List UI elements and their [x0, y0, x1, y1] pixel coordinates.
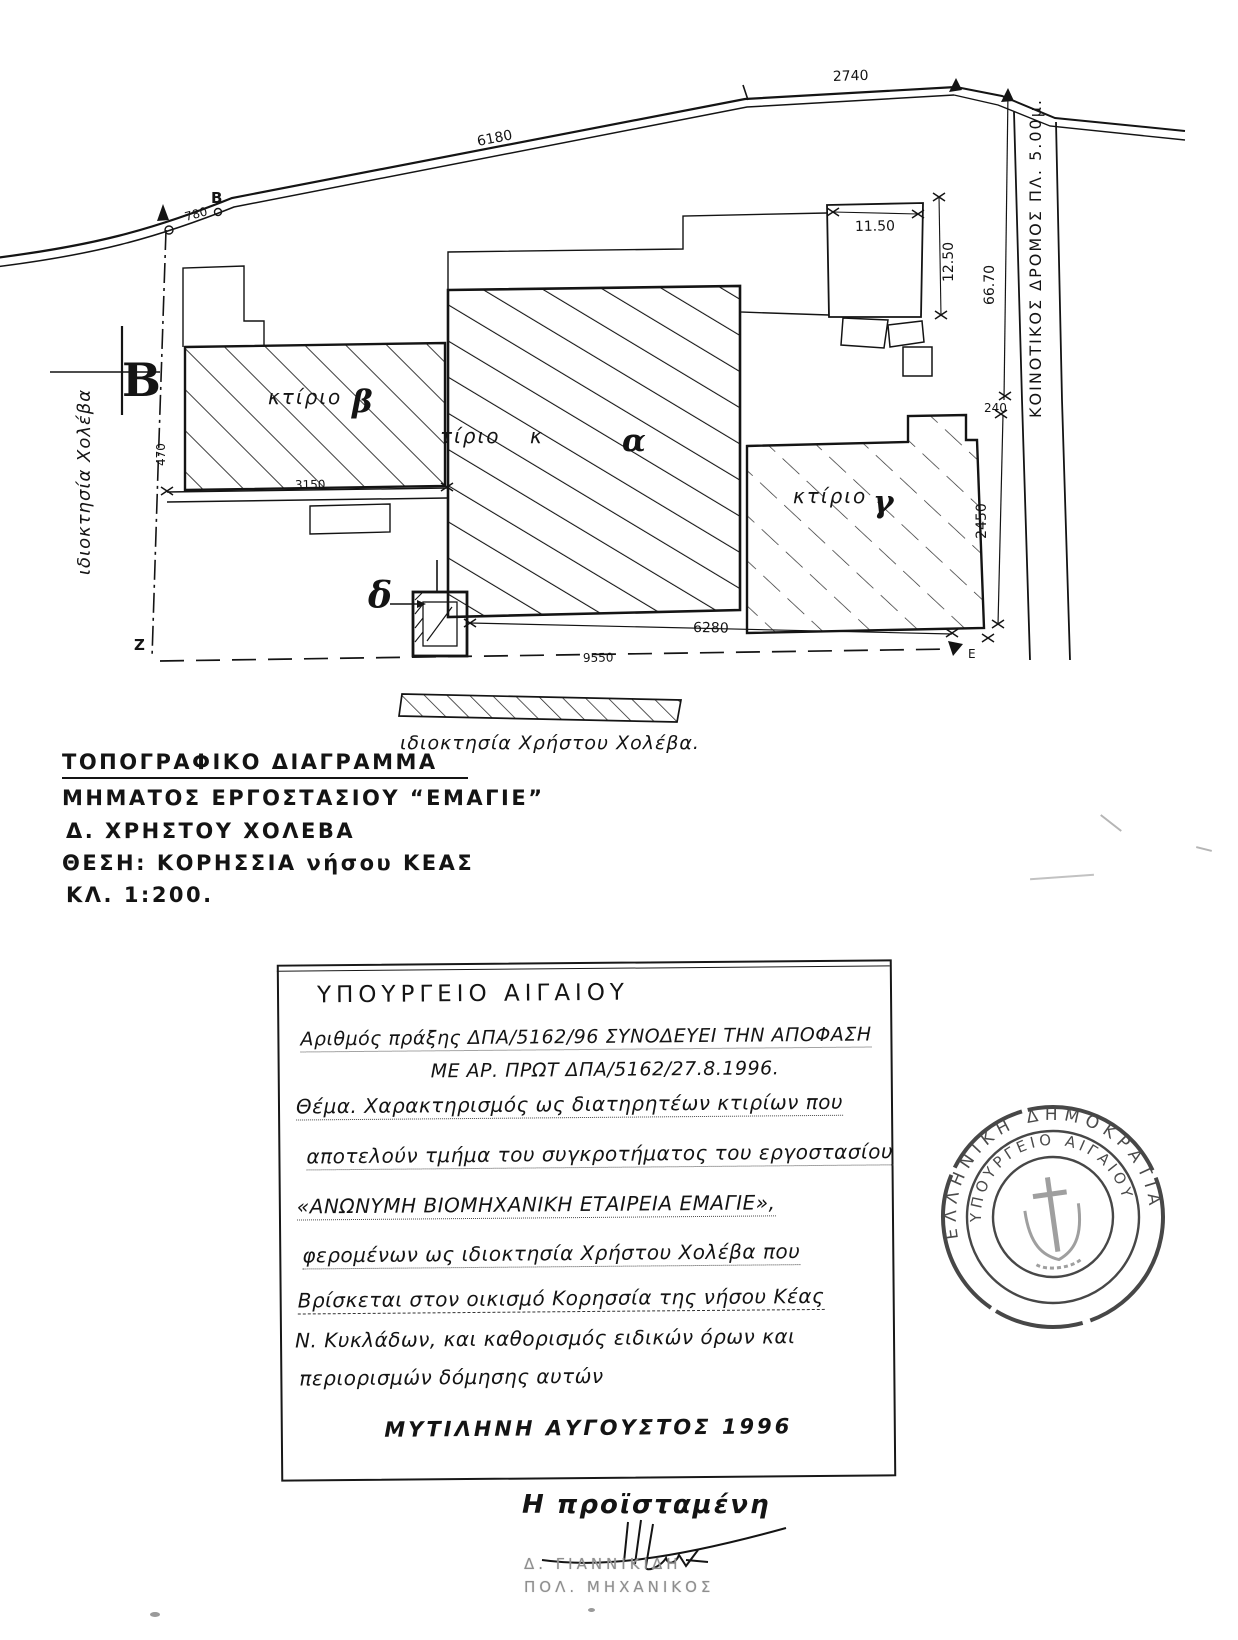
decision-line-6: «ΑΝΩΝΥΜΗ ΒΙΟΜΗΧΑΝΙΚΗ ΕΤΑΙΡΕΙΑ ΕΜΑΓΙΕ»,: [297, 1190, 776, 1220]
decision-line-2: Αριθμός πράξης ΔΠΑ/5162/96 ΣΥΝΟΔΕΥΕΙ ΤΗΝ…: [300, 1024, 871, 1053]
neighbour-strip: [399, 694, 681, 722]
building-gamma-word: κτίριο: [793, 484, 867, 508]
section-mark-b: Β: [50, 326, 161, 415]
decision-line-9: Ν. Κυκλάδων, και καθορισμός ειδικών όρων…: [295, 1324, 796, 1352]
corner-arrow: [949, 78, 962, 92]
beta-dim-strip: [167, 488, 447, 534]
dim-6280: 6280: [693, 620, 729, 637]
decision-line-4: Θέμα. Χαρακτηρισμός ως διατηρητέων κτιρί…: [296, 1090, 843, 1121]
decision-line-11: ΜΥΤΙΛΗΝΗ ΑΥΓΟΥΣΤΟΣ 1996: [283, 1413, 894, 1442]
building-alpha-letter: α: [622, 423, 646, 459]
scanned-topographic-document: ΚΟΙΝΟΤΙΚΟΣ ΔΡΟΜΟΣ ΠΛ. 5.00μ. B 780 6180 …: [0, 0, 1238, 1640]
road-tick: [743, 85, 748, 100]
scan-dot: [588, 1608, 595, 1612]
dim-9550: 9550: [583, 650, 614, 665]
title-line-5: ΚΛ. 1:200.: [66, 883, 214, 907]
dim-780: 780: [183, 204, 209, 223]
scan-dot: [150, 1612, 160, 1617]
dim-6670-arrow: [1001, 88, 1014, 102]
ministry-round-stamp: ΕΛΛΗΝΙΚΗ ΔΗΜΟΚΡΑΤΙΑ ΥΠΟΥΡΓΕΙΟ ΑΙΓΑΙΟΥ: [889, 1053, 1217, 1381]
building-alpha: [448, 286, 740, 617]
delta-leader-arrow: [417, 600, 426, 608]
decision-line-8: Βρίσκεται στον οικισμό Κορησσία της νήσο…: [298, 1284, 825, 1315]
scan-mark: [1030, 874, 1094, 880]
dim-1250: 12.50: [941, 242, 957, 282]
scan-mark: [1100, 814, 1122, 832]
title-line-1: ΤΟΠΟΓΡΑΦΙΚΟ ΔΙΑΓΡΑΜΜΑ: [62, 750, 468, 779]
svg-text:ΕΛΛΗΝΙΚΗ ΔΗΜΟΚΡΑΤΙΑ: ΕΛΛΗΝΙΚΗ ΔΗΜΟΚΡΑΤΙΑ: [926, 1090, 1165, 1240]
dim-6180: 6180: [476, 127, 514, 150]
building-gamma: [747, 415, 984, 633]
building-beta: [185, 343, 445, 490]
dim-1150: 11.50: [855, 218, 895, 235]
point-b-label: B: [211, 189, 222, 207]
title-line-3: Δ. ΧΡΗΣΤΟΥ ΧΟΛΕΒΑ: [66, 819, 355, 843]
road-name-label: ΚΟΙΝΟΤΙΚΟΣ ΔΡΟΜΟΣ ΠΛ. 5.00μ.: [1026, 98, 1045, 418]
site-plan-drawing: ΚΟΙΝΟΤΙΚΟΣ ΔΡΟΜΟΣ ΠΛ. 5.00μ. B 780 6180 …: [0, 0, 1238, 760]
box-inner-topline: [277, 965, 890, 971]
point-e-label: Ε: [968, 647, 976, 661]
decision-line-7: φερομένων ως ιδιοκτησία Χρήστου Χολέβα π…: [302, 1239, 800, 1269]
decision-line-3: ΜΕ ΑΡ. ΠΡΩΤ ΔΠΑ/5162/27.8.1996.: [431, 1057, 780, 1082]
point-a-arrow: [157, 204, 169, 221]
decision-line-10: περιορισμών δόμησης αυτών: [299, 1364, 603, 1391]
point-e-arrow: [948, 641, 963, 656]
dim-470: 470: [154, 443, 168, 466]
ministry-decision-box: ΥΠΟΥΡΓΕΙΟ ΑΙΓΑΙΟΥ Αριθμός πράξης ΔΠΑ/516…: [277, 959, 896, 1481]
ministry-heading: ΥΠΟΥΡΓΕΙΟ ΑΙΓΑΙΟΥ: [317, 980, 629, 1009]
title-line-2: ΜΗΜΑΤΟΣ ΕΡΓΟΣΤΑΣΙΟΥ “ΕΜΑΓΙΕ”: [62, 786, 545, 810]
point-z-label: Ζ: [134, 636, 145, 654]
decision-line-5: αποτελούν τμήμα του συγκροτήματος του ερ…: [306, 1139, 893, 1170]
stamp-outer-text: ΕΛΛΗΝΙΚΗ ΔΗΜΟΚΡΑΤΙΑ: [926, 1090, 1165, 1240]
building-beta-letter: β: [351, 384, 373, 420]
signatory-role: ΠΟΛ. ΜΗΧΑΝΙΚΟΣ: [524, 1578, 714, 1596]
boundary-bottom-dashed: [160, 649, 952, 661]
signatory-name: Δ. ΓΙΑΝΝΙΚΙΔΗ: [524, 1555, 682, 1573]
dim-3150: 3150: [295, 477, 326, 492]
building-beta-word: κτίριο: [268, 385, 342, 409]
dim-2740: 2740: [833, 68, 869, 85]
dim-lines-right: [998, 92, 1008, 625]
building-gamma-letter: γ: [873, 484, 895, 520]
building-delta-letter: δ: [367, 575, 392, 617]
dim-6670: 66.70: [982, 265, 998, 305]
stamp-emblem: [1021, 1174, 1087, 1272]
owner-left-label: ιδιοκτησία Χολέβα: [74, 389, 95, 575]
scan-mark: [1196, 846, 1212, 852]
svg-text:Β: Β: [122, 353, 161, 407]
title-line-4: ΘΕΣΗ: ΚΟΡΗΣΣΙΑ νήσου ΚΕΑΣ: [62, 851, 474, 875]
